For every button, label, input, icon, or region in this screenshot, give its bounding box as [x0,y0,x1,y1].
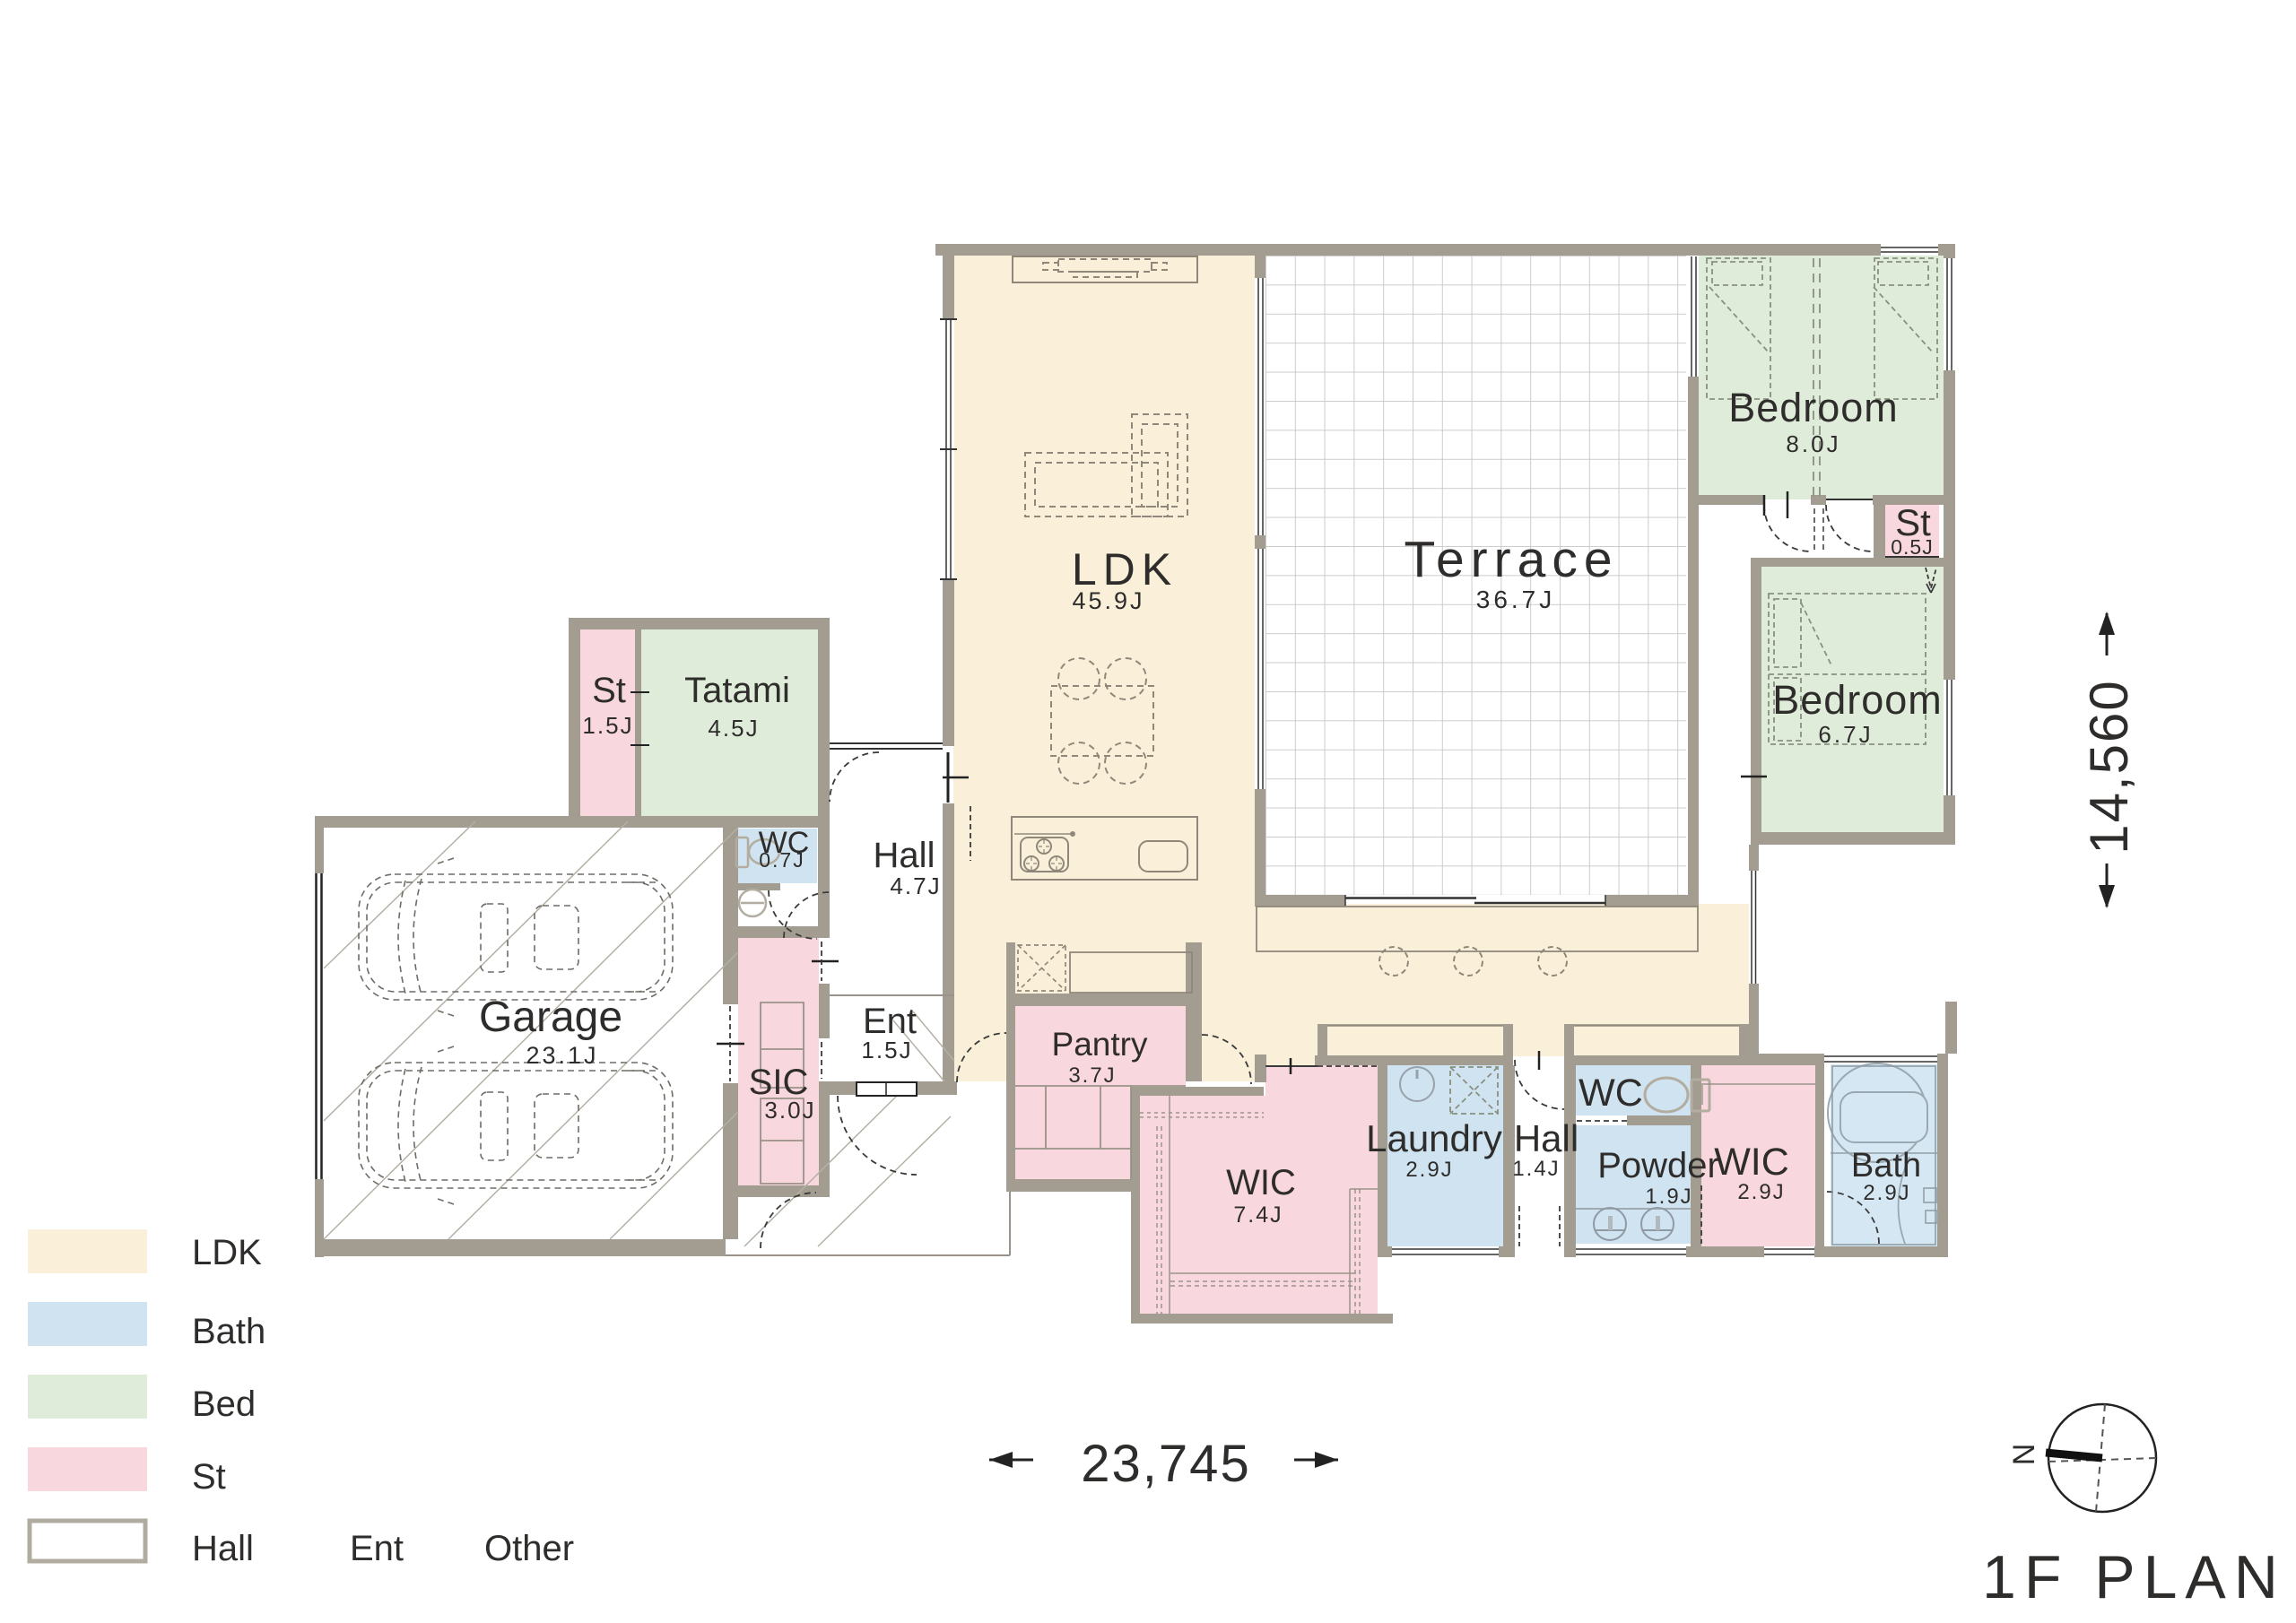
svg-text:23,745: 23,745 [1081,1435,1250,1493]
svg-text:WIC: WIC [1226,1163,1296,1202]
svg-text:23.1J: 23.1J [526,1042,598,1069]
svg-text:Tatami: Tatami [684,671,790,710]
svg-text:0.5J: 0.5J [1891,535,1933,559]
svg-text:Bath: Bath [1851,1147,1921,1185]
svg-text:Ent: Ent [863,1002,917,1041]
svg-text:Bedroom: Bedroom [1728,385,1899,430]
svg-text:0.7J: 0.7J [759,848,804,872]
svg-text:Bed: Bed [192,1384,256,1424]
svg-text:6.7J: 6.7J [1818,721,1873,748]
svg-text:Ent: Ent [350,1529,404,1568]
svg-text:36.7J: 36.7J [1476,586,1556,613]
svg-text:2.9J: 2.9J [1737,1180,1785,1204]
svg-text:N: N [2007,1444,2041,1466]
svg-text:Terrace: Terrace [1404,531,1618,588]
svg-text:Pantry: Pantry [1052,1026,1148,1063]
svg-text:WC: WC [1578,1072,1643,1115]
svg-text:1.5J: 1.5J [861,1037,912,1063]
svg-text:St: St [192,1457,226,1497]
svg-text:1.4J: 1.4J [1512,1157,1560,1181]
svg-text:Other: Other [484,1529,574,1568]
svg-text:7.4J: 7.4J [1233,1202,1283,1228]
svg-text:3.0J: 3.0J [764,1097,815,1124]
svg-text:14,560: 14,560 [2079,679,2139,855]
svg-text:2.9J: 2.9J [1863,1181,1910,1205]
svg-text:1F PLAN: 1F PLAN [1982,1543,2286,1611]
svg-text:1.9J: 1.9J [1645,1185,1692,1209]
svg-text:Bedroom: Bedroom [1772,677,1943,723]
svg-text:Powder: Powder [1597,1146,1719,1185]
svg-text:Hall: Hall [1514,1117,1578,1159]
svg-text:St: St [592,671,626,710]
svg-text:Bath: Bath [192,1312,265,1351]
svg-text:3.7J: 3.7J [1068,1063,1116,1088]
svg-text:4.5J: 4.5J [708,715,759,742]
svg-text:Hall: Hall [192,1529,254,1568]
svg-text:Laundry: Laundry [1366,1117,1502,1159]
svg-text:WIC: WIC [1714,1141,1789,1184]
svg-text:Garage: Garage [479,994,622,1041]
svg-text:2.9J: 2.9J [1405,1158,1453,1182]
svg-text:8.0J: 8.0J [1786,430,1840,457]
svg-text:45.9J: 45.9J [1072,587,1144,614]
svg-text:LDK: LDK [192,1233,262,1272]
svg-text:Hall: Hall [874,836,935,875]
svg-text:4.7J: 4.7J [890,872,941,899]
svg-text:1.5J: 1.5J [582,712,633,739]
